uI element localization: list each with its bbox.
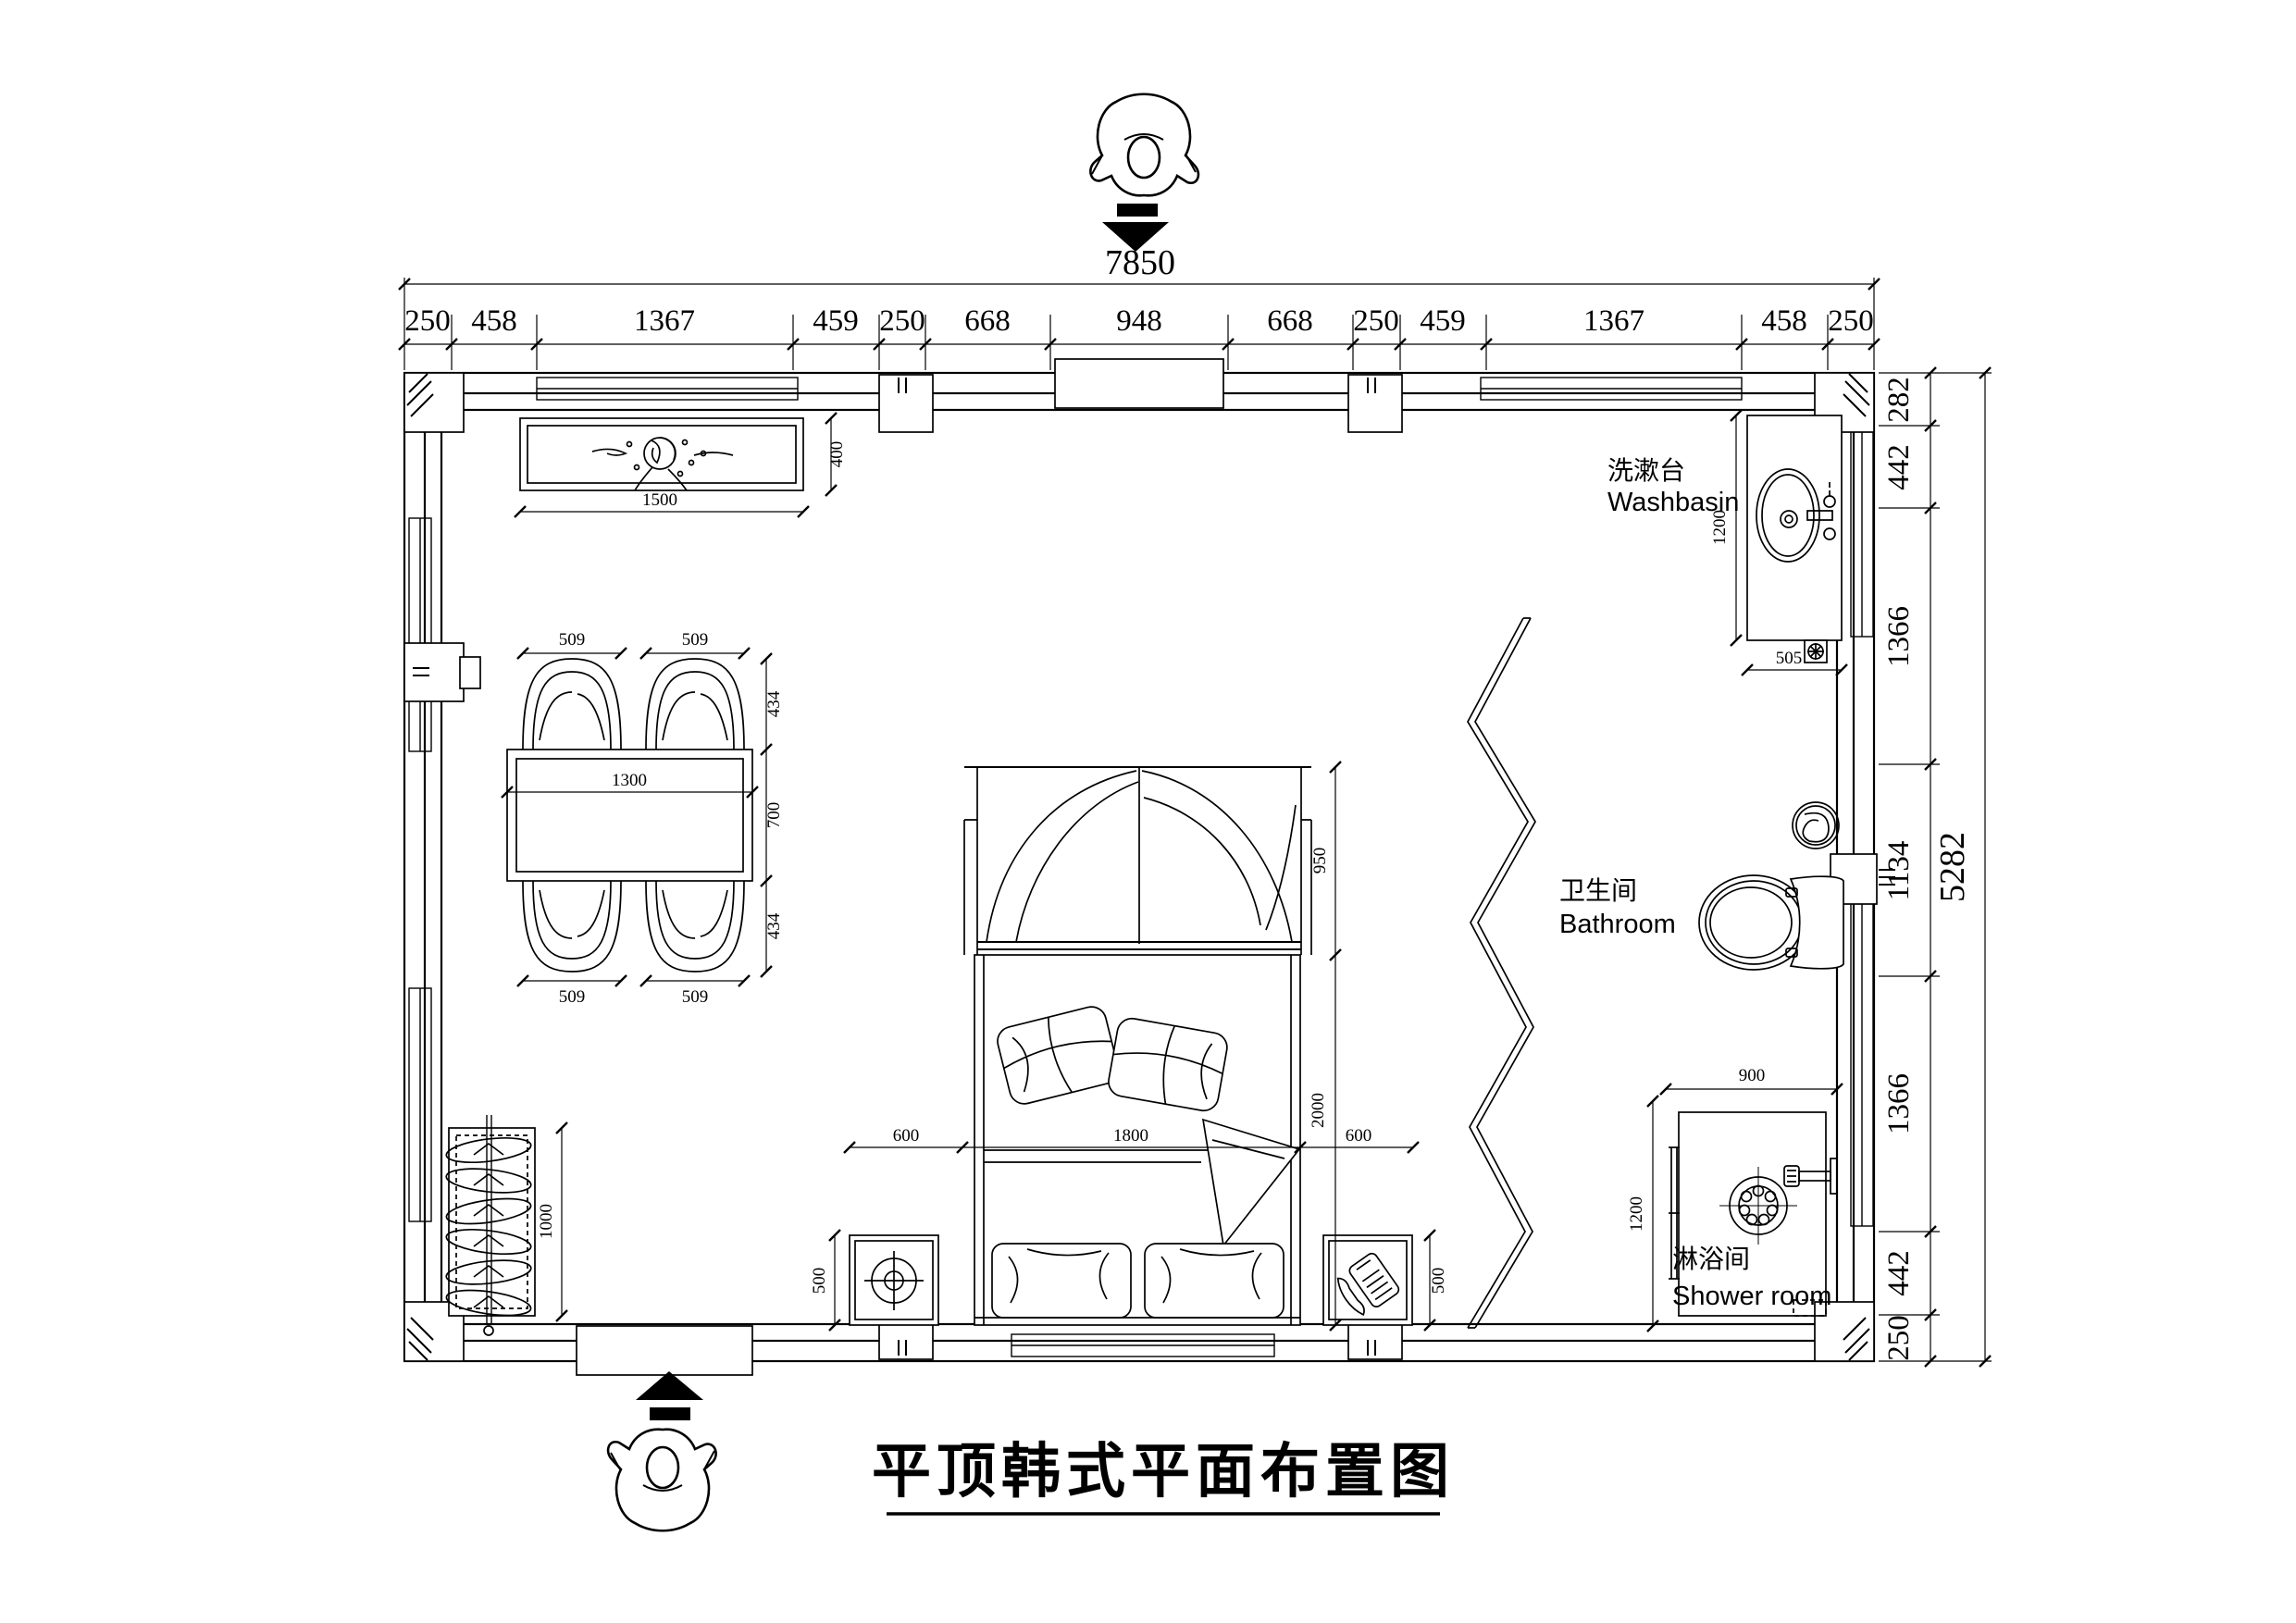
console-cabinet: 1500 400 [515,413,847,517]
dimension-chain-top: 7850 250 458 1367 459 250 668 948 668 25… [399,243,1880,370]
dim-chair-bl: 509 [559,987,586,1007]
dim-chair-depth-bottom: 434 [764,912,784,939]
entry-arrow-top-bar [1117,204,1158,217]
dimension-chain-right: 5282 282 442 1366 1134 1366 442 250 [1879,367,1992,1367]
dim-chair-tr: 509 [682,630,709,650]
dim-top-12: 250 [1828,304,1874,338]
dim-canopy: 950 [1310,848,1330,874]
dim-top-8: 250 [1353,304,1399,338]
toilet-icon [1699,875,1843,970]
dim-cabinet-depth: 400 [827,441,847,468]
window-left-upper [409,518,431,751]
pillow-left [992,1244,1131,1318]
dim-right-0: 282 [1882,377,1916,423]
dim-nightstand-right: 500 [1429,1268,1448,1295]
window-bottom [1011,1334,1274,1357]
floorplan-page: 7850 250 458 1367 459 250 668 948 668 25… [0,0,2296,1623]
dim-top-11: 458 [1761,304,1807,338]
dim-shower-depth: 1200 [1627,1196,1646,1232]
dim-top-1: 458 [471,304,517,338]
folding-partition [1468,618,1535,1328]
dining-set: 1300 509 509 509 509 434 700 434 [502,630,784,1007]
dim-bed-right: 600 [1346,1126,1372,1146]
dim-bed-left: 600 [893,1126,920,1146]
column-corner-tl [404,373,464,432]
dim-chair-depth-top: 434 [764,690,784,717]
dim-right-3: 1134 [1882,841,1916,901]
dim-bed-width: 1800 [1113,1126,1148,1146]
entry-arrow-bottom-bar [650,1407,690,1420]
bathroom-label: 卫生间 Bathroom [1559,876,1676,939]
dim-right-6: 250 [1882,1315,1916,1361]
dim-chair-br: 509 [682,987,709,1007]
dim-top-5: 668 [964,304,1011,338]
dim-nightstand-left: 500 [810,1268,829,1295]
window-top-right [1481,378,1742,400]
dim-right-4: 1366 [1882,1073,1916,1134]
dining-table [507,750,752,881]
dim-top-3: 459 [813,304,859,338]
dim-wardrobe-height: 1000 [537,1204,556,1239]
column-left-mid-tab [460,657,480,688]
exhaust-fan-icon [1793,802,1839,849]
chair-top-right [646,659,744,750]
dim-shower-width: 900 [1739,1066,1766,1085]
dim-top-total: 7850 [1105,243,1175,282]
dim-basin-width: 505 [1776,649,1803,668]
shower-drain-icon [1719,1167,1797,1245]
dim-top-2: 1367 [634,304,695,338]
shower-label-en: Shower room [1672,1282,1831,1311]
dim-top-9: 459 [1420,304,1466,338]
drawing-title: 平顶韩式平面布置图 [872,1438,1455,1514]
shower-head-icon [1784,1158,1837,1194]
door-bottom [577,1326,752,1375]
nightstand-right [1323,1235,1412,1325]
dim-top-0: 250 [404,304,451,338]
dim-top-6: 948 [1116,304,1162,338]
bed-canopy [964,767,1311,955]
dim-top-10: 1367 [1583,304,1644,338]
pillow-right [1145,1244,1284,1318]
dim-table-depth: 700 [764,802,784,829]
washbasin-label-en: Washbasin [1607,488,1739,517]
bed-group: 600 1800 600 950 2000 500 500 [810,762,1448,1331]
shower-room: 900 1200 淋浴间 Shower room [1627,1066,1843,1332]
bathroom-area: 卫生间 Bathroom [1559,802,1843,970]
dim-bed-length: 2000 [1309,1093,1328,1128]
dim-right-2: 1366 [1882,606,1916,667]
washbasin-label: 洗漱台 Washbasin [1607,456,1739,517]
chair-bottom-left [523,881,621,972]
dim-right-5: 442 [1882,1250,1916,1296]
title-text: 平顶韩式平面布置图 [872,1438,1455,1505]
dim-cabinet-width: 1500 [642,490,677,510]
dim-right-1: 442 [1882,444,1916,490]
chair-top-left [523,659,621,750]
column-left-mid [404,643,464,701]
chair-bottom-right [646,881,744,972]
dim-top-4: 250 [879,304,925,338]
wardrobe-dim: 1000 [537,1122,567,1321]
wardrobe-rack: 1000 [445,1115,567,1335]
floorplan-svg: 7850 250 458 1367 459 250 668 948 668 25… [0,0,2296,1623]
bathroom-label-zh: 卫生间 [1559,876,1637,905]
door-top [1055,359,1223,408]
window-left-lower [409,988,431,1221]
person-bottom [608,1371,716,1530]
dim-right-total: 5282 [1933,832,1972,902]
dim-table-width: 1300 [612,771,647,790]
bathroom-label-en: Bathroom [1559,910,1676,939]
shower-label: 淋浴间 Shower room [1672,1245,1831,1311]
dim-chair-tl: 509 [559,630,586,650]
shower-label-zh: 淋浴间 [1672,1245,1750,1273]
floor-drain-icon [1805,640,1827,663]
washbasin-area: 1200 505 洗漱台 Washbasin [1607,410,1847,675]
washbasin-label-zh: 洗漱台 [1607,456,1685,485]
nightstand-left [850,1235,938,1325]
person-top [1090,94,1198,252]
washbasin-counter [1747,415,1842,640]
dim-top-7: 668 [1267,304,1313,338]
window-top-left [537,378,798,400]
